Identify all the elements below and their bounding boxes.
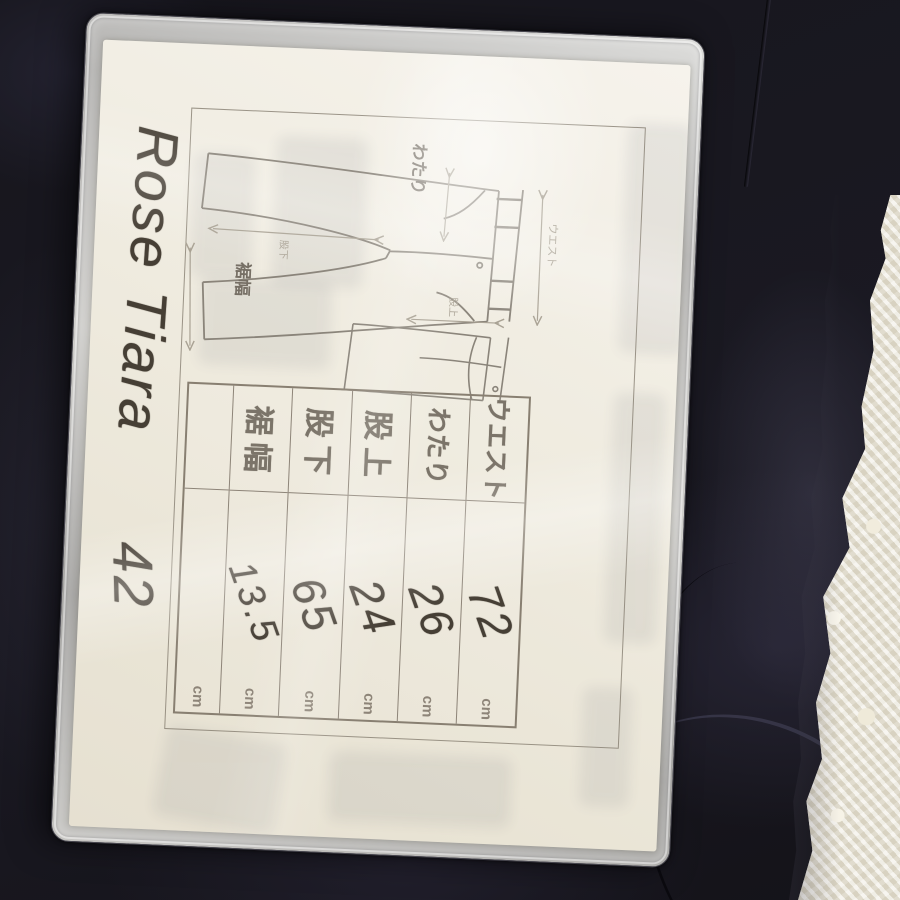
bleedthrough-text-blur bbox=[197, 276, 333, 370]
table-row: 裾幅 13.5 cm bbox=[219, 386, 292, 716]
measurement-label: 裾幅 bbox=[230, 386, 293, 493]
bleedthrough-text-blur bbox=[189, 152, 256, 280]
table-row: ウエスト 72 cm bbox=[456, 396, 529, 726]
measurement-value-cell: 13.5 cm bbox=[220, 491, 288, 716]
bleedthrough-text-blur bbox=[618, 123, 691, 356]
unit-label: cm bbox=[359, 693, 377, 715]
photo-scene: ウエスト わたり 股下 裾幅 股上 ウエスト 72 cm わたり 26 cm 股… bbox=[0, 0, 900, 900]
unit-label: cm bbox=[418, 695, 436, 717]
bleedthrough-text-blur bbox=[327, 750, 512, 828]
measurement-value-cell: 26 cm bbox=[398, 498, 466, 723]
rise-diagram-label: 股上 bbox=[446, 297, 459, 318]
table-row: 股下 65 cm bbox=[278, 388, 351, 718]
measurement-label: わたり bbox=[407, 393, 470, 500]
bleedthrough-text-blur bbox=[271, 135, 369, 289]
measurement-value: 26 bbox=[398, 576, 466, 646]
unit-label: cm bbox=[189, 685, 207, 707]
plastic-sleeve: ウエスト わたり 股下 裾幅 股上 ウエスト 72 cm わたり 26 cm 股… bbox=[50, 12, 706, 868]
bleedthrough-text-blur bbox=[152, 723, 289, 836]
measurement-value: 13.5 bbox=[220, 557, 288, 650]
measurement-value-cell: 24 cm bbox=[338, 496, 406, 721]
inseam-diagram-label: 股下 bbox=[277, 239, 290, 260]
bleedthrough-text-blur bbox=[578, 686, 633, 808]
table-row: わたり 26 cm bbox=[397, 393, 470, 723]
unit-label: cm bbox=[300, 690, 318, 712]
table-row: cm bbox=[175, 384, 234, 714]
measurement-value-cell: cm bbox=[175, 489, 229, 714]
size-card: ウエスト わたり 股下 裾幅 股上 ウエスト 72 cm わたり 26 cm 股… bbox=[50, 12, 706, 868]
pants-diagram: ウエスト わたり 股下 裾幅 股上 bbox=[176, 95, 658, 409]
measurement-value-cell: 65 cm bbox=[279, 493, 347, 718]
plastic-sheen bbox=[69, 40, 691, 852]
handwritten-size: 42 bbox=[100, 541, 167, 611]
measurement-value: 65 bbox=[279, 571, 347, 641]
waist-diagram-label: ウエスト bbox=[545, 223, 560, 268]
hem-diagram-label: 裾幅 bbox=[232, 262, 253, 297]
measure-arrows bbox=[186, 162, 544, 361]
measurement-value: 72 bbox=[457, 578, 525, 648]
measurement-label: 股上 bbox=[348, 391, 411, 498]
measurement-label: ウエスト bbox=[466, 396, 529, 503]
measurement-label: 股下 bbox=[289, 388, 352, 495]
watari-diagram-label: わたり bbox=[408, 143, 429, 195]
unit-label: cm bbox=[477, 698, 495, 720]
bleedthrough-text-blur bbox=[603, 392, 666, 644]
printed-border-box bbox=[164, 108, 646, 749]
measurement-value-cell: 72 cm bbox=[457, 501, 525, 726]
handwritten-brand: Rose Tiara bbox=[104, 124, 191, 436]
measurement-table: ウエスト 72 cm わたり 26 cm 股上 24 cm 股下 65 cm 裾… bbox=[173, 382, 531, 729]
table-row: 股上 24 cm bbox=[337, 391, 410, 721]
pants-back-outline bbox=[341, 323, 509, 401]
unit-label: cm bbox=[241, 688, 259, 710]
measurement-label bbox=[185, 384, 234, 491]
size-card-paper: ウエスト わたり 股下 裾幅 股上 ウエスト 72 cm わたり 26 cm 股… bbox=[69, 40, 691, 852]
fabric-seam-top bbox=[744, 0, 772, 187]
measurement-value: 24 bbox=[338, 573, 406, 643]
pants-front-outline bbox=[196, 153, 524, 353]
